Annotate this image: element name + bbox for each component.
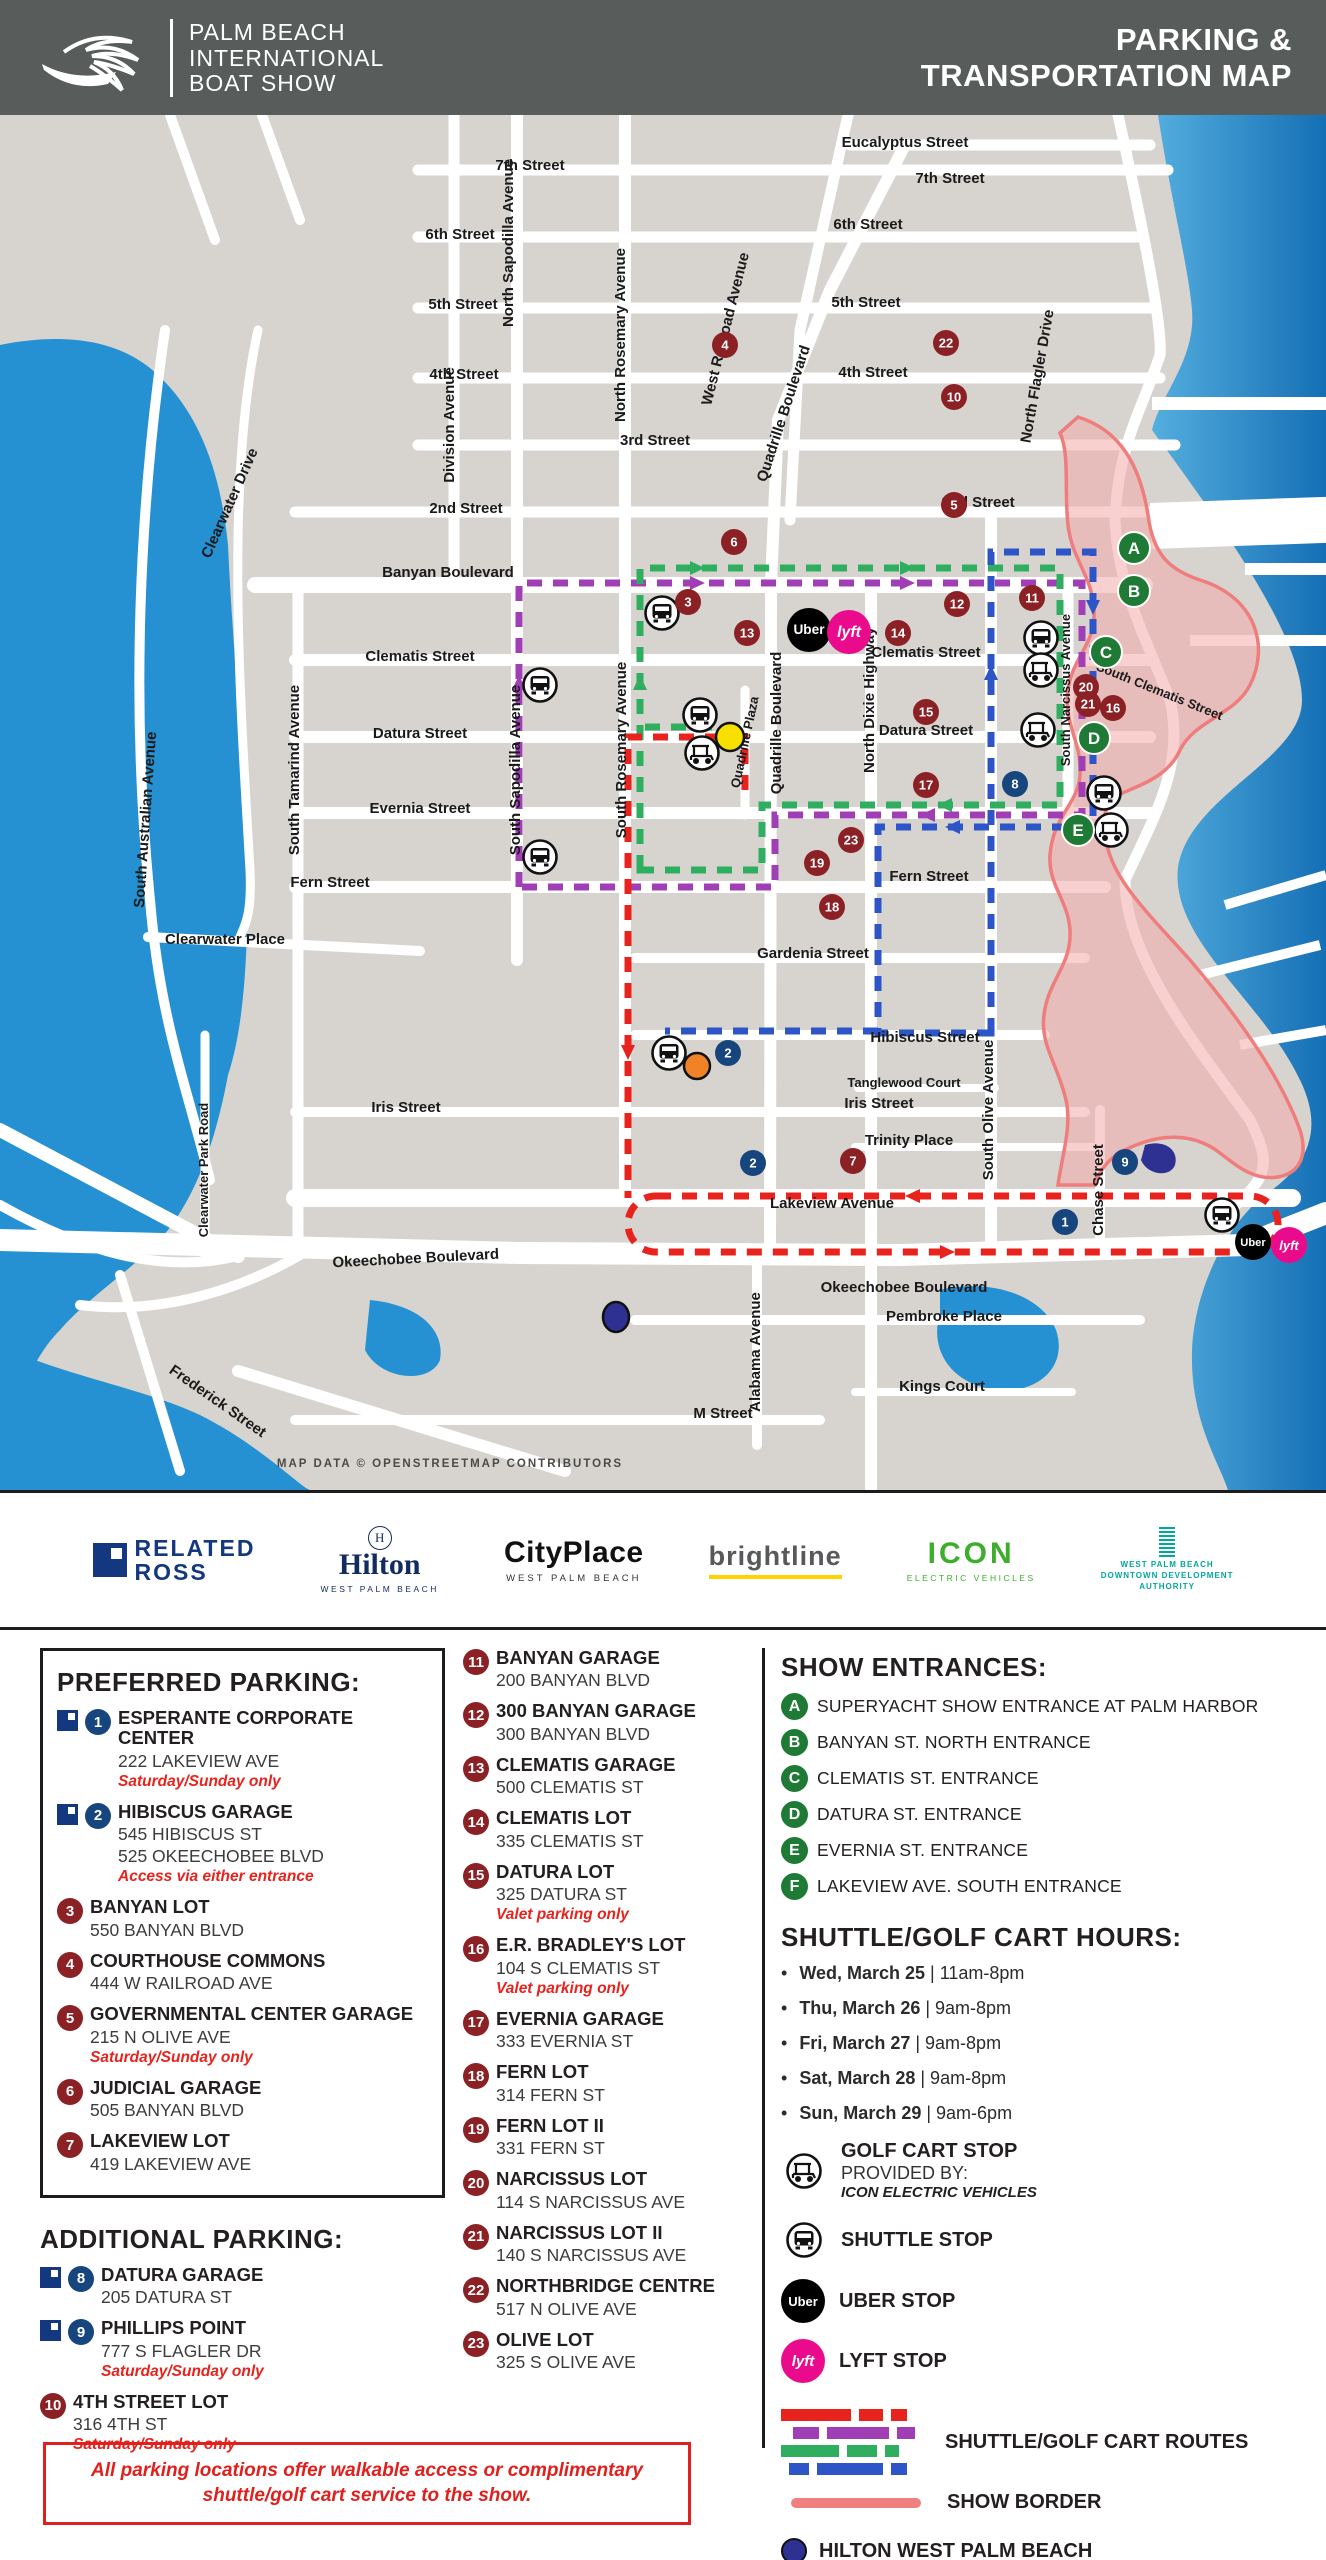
show-entrances-title: SHOW ENTRANCES:: [781, 1652, 1271, 1683]
parking-address: 104 S CLEMATIS ST: [496, 1958, 685, 1978]
street-label: South Narcissus Avenue: [1058, 614, 1073, 766]
map-marker-label-3: 3: [684, 595, 691, 610]
hilton-dot-icon: [781, 2538, 807, 2560]
hours-day: Thu, March 26: [799, 1998, 920, 2018]
parking-note: Saturday/Sunday only: [101, 2363, 264, 2381]
parking-item-text: FERN LOT314 FERN ST: [496, 2062, 605, 2104]
street-label: Clearwater Place: [165, 931, 285, 948]
hours-item-4: •Sun, March 29 | 9am-6pm: [781, 2103, 1271, 2124]
page: PALM BEACH INTERNATIONAL BOAT SHOW PARKI…: [0, 0, 1326, 2560]
street-label: Iris Street: [844, 1095, 913, 1112]
related-ross-flag-icon: [40, 2320, 61, 2341]
street-label: Division Avenue: [441, 367, 458, 483]
street-label: Iris Street: [371, 1099, 440, 1116]
related-ross-mark-icon: [93, 1543, 127, 1577]
related-ross-flag-icon: [57, 1804, 78, 1825]
lyft-stop-label: lyft: [837, 624, 861, 641]
shuttle-stop-legend: SHUTTLE STOP: [781, 2217, 1271, 2263]
hilton-logo: H Hilton WEST PALM BEACH: [321, 1526, 439, 1594]
parking-item-23: 23OLIVE LOT325 S OLIVE AVE: [463, 2330, 758, 2372]
uber-stop-label: Uber: [793, 622, 825, 637]
parking-item-12: 12300 BANYAN GARAGE300 BANYAN BLVD: [463, 1701, 758, 1743]
street-label: 4th Street: [838, 364, 907, 381]
street-label: South Olive Avenue: [980, 1040, 997, 1181]
golf-cart-stop-legend: GOLF CART STOP PROVIDED BY: ICON ELECTRI…: [781, 2140, 1271, 2201]
parking-badge-11: 11: [463, 1649, 489, 1675]
map-marker-label-19: 19: [810, 856, 824, 871]
brand: PALM BEACH INTERNATIONAL BOAT SHOW: [34, 12, 384, 104]
parking-item-text: EVERNIA GARAGE333 EVERNIA ST: [496, 2009, 664, 2051]
brand-divider: [170, 19, 173, 97]
street-label: Evernia Street: [370, 800, 471, 817]
parking-item-text: FERN LOT II331 FERN ST: [496, 2116, 605, 2158]
parking-address: 545 HIBISCUS ST: [118, 1824, 324, 1844]
parking-item-4: 4COURTHOUSE COMMONS444 W RAILROAD AVE: [57, 1951, 428, 1993]
cityplace-logo: CityPlace WEST PALM BEACH: [504, 1536, 644, 1584]
parking-address: 316 4TH ST: [73, 2414, 236, 2434]
shuttle-stop-icon: [781, 2217, 827, 2263]
entrance-badge-B: B: [781, 1729, 808, 1756]
parking-name: BANYAN LOT: [90, 1897, 244, 1917]
shuttle-stop-icon: [653, 1037, 686, 1070]
boat-show-logo-icon: [34, 12, 154, 104]
parking-address: 200 BANYAN BLVD: [496, 1670, 660, 1690]
parking-item-text: LAKEVIEW LOT419 LAKEVIEW AVE: [90, 2131, 251, 2173]
street-label: Chase Street: [1090, 1144, 1107, 1236]
parking-name: 4TH STREET LOT: [73, 2392, 236, 2412]
parking-note: Saturday/Sunday only: [118, 1773, 428, 1791]
parking-item-text: DATURA LOT325 DATURA STValet parking onl…: [496, 1862, 629, 1924]
parking-badge-17: 17: [463, 2010, 489, 2036]
parking-item-7: 7LAKEVIEW LOT419 LAKEVIEW AVE: [57, 2131, 428, 2173]
map-marker-label-15: 15: [919, 705, 933, 720]
related-ross-flag-icon: [57, 1710, 78, 1731]
parking-address: 215 N OLIVE AVE: [90, 2027, 413, 2047]
parking-name: GOVERNMENTAL CENTER GARAGE: [90, 2004, 413, 2024]
map-marker-label-1: 1: [1061, 1215, 1068, 1230]
shuttle-stop-icon: [524, 669, 557, 702]
legend: PREFERRED PARKING: 1ESPERANTE CORPORATE …: [0, 1630, 1326, 2560]
entrance-label: BANYAN ST. NORTH ENTRANCE: [817, 1732, 1091, 1753]
parking-badge-16: 16: [463, 1936, 489, 1962]
parking-address: 777 S FLAGLER DR: [101, 2341, 264, 2361]
map-marker-label-12: 12: [950, 597, 964, 612]
map-marker-label-5: 5: [950, 498, 957, 513]
entrance-item-E: EEVERNIA ST. ENTRANCE: [781, 1837, 1271, 1864]
hours-text: Sun, March 29 | 9am-6pm: [799, 2103, 1012, 2124]
entrance-item-A: ASUPERYACHT SHOW ENTRANCE AT PALM HARBOR: [781, 1693, 1271, 1720]
parking-item-3: 3BANYAN LOT550 BANYAN BLVD: [57, 1897, 428, 1939]
street-label: 2nd Street: [429, 500, 502, 517]
street-label: Pembroke Place: [886, 1308, 1002, 1325]
map-marker-label-11: 11: [1025, 591, 1039, 606]
parking-address: 325 DATURA ST: [496, 1884, 629, 1904]
parking-item-22: 22NORTHBRIDGE CENTRE517 N OLIVE AVE: [463, 2276, 758, 2318]
parking-name: BANYAN GARAGE: [496, 1648, 660, 1668]
street-label: South Tamarind Avenue: [286, 685, 303, 855]
shuttle-stop-icon: [1025, 622, 1058, 655]
parking-item-text: CLEMATIS LOT335 CLEMATIS ST: [496, 1808, 644, 1850]
dda-tower-icon: [1159, 1527, 1175, 1557]
street-label: North Sapodilla Avenue: [500, 159, 517, 327]
show-info-column: SHOW ENTRANCES: ASUPERYACHT SHOW ENTRANC…: [781, 1648, 1271, 2560]
parking-item-8: 8DATURA GARAGE205 DATURA ST: [40, 2265, 445, 2307]
map-marker-label-18: 18: [825, 900, 839, 915]
parking-address: 525 OKEECHOBEE BLVD: [118, 1846, 324, 1866]
parking-item-text: E.R. BRADLEY'S LOT104 S CLEMATIS STValet…: [496, 1935, 685, 1997]
parking-name: DATURA GARAGE: [101, 2265, 263, 2285]
map-marker-label-14: 14: [891, 626, 906, 641]
parking-address: 335 CLEMATIS ST: [496, 1831, 644, 1851]
map-entrance-label-D: D: [1088, 729, 1100, 748]
parking-address: 205 DATURA ST: [101, 2287, 263, 2307]
header: PALM BEACH INTERNATIONAL BOAT SHOW PARKI…: [0, 0, 1326, 115]
hours-text: Fri, March 27 | 9am-8pm: [799, 2033, 1001, 2054]
street-label: Gardenia Street: [757, 945, 869, 962]
show-border-legend: SHOW BORDER: [781, 2491, 1271, 2514]
parking-note: Access via either entrance: [118, 1868, 324, 1886]
street-label: 6th Street: [833, 216, 902, 233]
map-marker-label-9: 9: [1121, 1155, 1128, 1170]
hilton-dot: [603, 1302, 629, 1332]
parking-note: Saturday/Sunday only: [90, 2049, 413, 2067]
street-label: Okeechobee Boulevard: [821, 1279, 988, 1296]
routes-swatch-icon: [781, 2409, 931, 2475]
parking-address: 444 W RAILROAD AVE: [90, 1973, 325, 1993]
parking-name: E.R. BRADLEY'S LOT: [496, 1935, 685, 1955]
parking-address: 140 S NARCISSUS AVE: [496, 2245, 686, 2265]
hours-day: Fri, March 27: [799, 2033, 910, 2053]
parking-item-text: NARCISSUS LOT114 S NARCISSUS AVE: [496, 2169, 685, 2211]
parking-address: 222 LAKEVIEW AVE: [118, 1751, 428, 1771]
entrance-label: EVERNIA ST. ENTRANCE: [817, 1840, 1028, 1861]
parking-badge-5: 5: [57, 2005, 83, 2031]
parking-name: FERN LOT II: [496, 2116, 605, 2136]
brightline-dot: [716, 723, 744, 751]
street-label: Trinity Place: [865, 1132, 953, 1149]
parking-item-19: 19FERN LOT II331 FERN ST: [463, 2116, 758, 2158]
parking-name: LAKEVIEW LOT: [90, 2131, 251, 2151]
dda-logo: WEST PALM BEACH DOWNTOWN DEVELOPMENT AUT…: [1101, 1527, 1234, 1592]
street-label: Alabama Avenue: [747, 1292, 764, 1412]
parking-address: 419 LAKEVIEW AVE: [90, 2154, 251, 2174]
parking-item-15: 15DATURA LOT325 DATURA STValet parking o…: [463, 1862, 758, 1924]
hours-title: SHUTTLE/GOLF CART HOURS:: [781, 1922, 1271, 1953]
parking-item-18: 18FERN LOT314 FERN ST: [463, 2062, 758, 2104]
street-label: North Rosemary Avenue: [612, 248, 629, 422]
additional-parking-title: ADDITIONAL PARKING:: [40, 2224, 445, 2255]
hilton-mark-icon: H: [368, 1526, 392, 1550]
parking-badge-23: 23: [463, 2331, 489, 2357]
street-label: Fern Street: [290, 874, 369, 891]
parking-item-21: 21NARCISSUS LOT II140 S NARCISSUS AVE: [463, 2223, 758, 2265]
parking-name: OLIVE LOT: [496, 2330, 636, 2350]
sponsor-bar: RELATEDROSS H Hilton WEST PALM BEACH Cit…: [0, 1490, 1326, 1630]
preferred-parking-title: PREFERRED PARKING:: [57, 1667, 428, 1698]
entrance-label: CLEMATIS ST. ENTRANCE: [817, 1768, 1039, 1789]
parking-name: FERN LOT: [496, 2062, 605, 2082]
parking-item-text: DATURA GARAGE205 DATURA ST: [101, 2265, 263, 2307]
street-label: South Rosemary Avenue: [613, 662, 630, 838]
parking-name: NORTHBRIDGE CENTRE: [496, 2276, 715, 2296]
entrance-item-F: FLAKEVIEW AVE. SOUTH ENTRANCE: [781, 1873, 1271, 1900]
hours-item-2: •Fri, March 27 | 9am-8pm: [781, 2033, 1271, 2054]
parking-item-20: 20NARCISSUS LOT114 S NARCISSUS AVE: [463, 2169, 758, 2211]
hours-text: Thu, March 26 | 9am-8pm: [799, 1998, 1011, 2019]
golf-cart-stop-icon: [1022, 714, 1055, 747]
parking-name: EVERNIA GARAGE: [496, 2009, 664, 2029]
map-marker-label-10: 10: [947, 390, 961, 405]
parking-badge-4: 4: [57, 1952, 83, 1978]
map-entrance-label-B: B: [1128, 582, 1140, 601]
street-label: Quadrille Boulevard: [768, 652, 785, 795]
entrance-label: LAKEVIEW AVE. SOUTH ENTRANCE: [817, 1876, 1122, 1897]
uber-icon: Uber: [781, 2279, 825, 2323]
parking-item-text: BANYAN LOT550 BANYAN BLVD: [90, 1897, 244, 1939]
parking-badge-6: 6: [57, 2079, 83, 2105]
map-attribution: MAP DATA © OPENSTREETMAP CONTRIBUTORS: [277, 1458, 623, 1470]
parking-address: 333 EVERNIA ST: [496, 2031, 664, 2051]
map-entrance-label-A: A: [1128, 539, 1140, 558]
parking-name: NARCISSUS LOT II: [496, 2223, 686, 2243]
parking-badge-19: 19: [463, 2117, 489, 2143]
parking-item-text: ESPERANTE CORPORATE CENTER222 LAKEVIEW A…: [118, 1708, 428, 1791]
bullet-icon: •: [781, 2103, 787, 2124]
golf-cart-stop-icon: [781, 2148, 827, 2194]
lyft-stop-legend: lyft LYFT STOP: [781, 2339, 1271, 2383]
show-border-swatch-icon: [791, 2498, 921, 2508]
map-marker-label-4: 4: [721, 338, 729, 353]
preferred-parking-box: PREFERRED PARKING: 1ESPERANTE CORPORATE …: [40, 1648, 445, 2198]
map-canvas: Eucalyptus Street7th Street7th Street6th…: [0, 115, 1326, 1490]
street-label: 4th Street: [429, 366, 498, 383]
parking-name: PHILLIPS POINT: [101, 2318, 264, 2338]
parking-item-9: 9PHILLIPS POINT777 S FLAGLER DRSaturday/…: [40, 2318, 445, 2380]
parking-badge-10: 10: [40, 2393, 66, 2419]
parking-item-text: PHILLIPS POINT777 S FLAGLER DRSaturday/S…: [101, 2318, 264, 2380]
parking-item-text: COURTHOUSE COMMONS444 W RAILROAD AVE: [90, 1951, 325, 1993]
parking-item-text: OLIVE LOT325 S OLIVE AVE: [496, 2330, 636, 2372]
parking-item-14: 14CLEMATIS LOT335 CLEMATIS ST: [463, 1808, 758, 1850]
street-label: Hibiscus Street: [870, 1029, 979, 1046]
parking-name: COURTHOUSE COMMONS: [90, 1951, 325, 1971]
parking-address: 517 N OLIVE AVE: [496, 2299, 715, 2319]
legend-divider: [762, 1648, 765, 2448]
parking-item-text: HIBISCUS GARAGE545 HIBISCUS ST525 OKEECH…: [118, 1802, 324, 1887]
parking-item-11: 11BANYAN GARAGE200 BANYAN BLVD: [463, 1648, 758, 1690]
parking-address: 550 BANYAN BLVD: [90, 1920, 244, 1940]
cityplace-dot: [684, 1053, 710, 1079]
hours-text: Sat, March 28 | 9am-8pm: [799, 2068, 1006, 2089]
street-label: Banyan Boulevard: [382, 564, 514, 581]
hours-day: Wed, March 25: [799, 1963, 925, 1983]
parking-name: CLEMATIS LOT: [496, 1808, 644, 1828]
map-marker-label-8: 8: [1011, 777, 1018, 792]
map-entrance-label-E: E: [1072, 821, 1083, 840]
street-label: Clematis Street: [871, 644, 980, 661]
icon-ev-logo: ICON ELECTRIC VEHICLES: [907, 1537, 1036, 1583]
street-label: 5th Street: [428, 296, 497, 313]
map-marker-label-13: 13: [740, 626, 754, 641]
parking-address: 314 FERN ST: [496, 2085, 605, 2105]
entrance-item-B: BBANYAN ST. NORTH ENTRANCE: [781, 1729, 1271, 1756]
uber-stop-legend: Uber UBER STOP: [781, 2279, 1271, 2323]
entrance-item-C: CCLEMATIS ST. ENTRANCE: [781, 1765, 1271, 1792]
hours-item-3: •Sat, March 28 | 9am-8pm: [781, 2068, 1271, 2089]
street-label: Kings Court: [899, 1378, 985, 1395]
hours-day: Sun, March 29: [799, 2103, 921, 2123]
parking-badge-1: 1: [85, 1709, 111, 1735]
street-label: Fern Street: [889, 868, 968, 885]
bullet-icon: •: [781, 1998, 787, 2019]
parking-address: 300 BANYAN BLVD: [496, 1724, 696, 1744]
bullet-icon: •: [781, 2068, 787, 2089]
parking-badge-13: 13: [463, 1756, 489, 1782]
street-label: Lakeview Avenue: [770, 1195, 894, 1212]
parking-name: JUDICIAL GARAGE: [90, 2078, 261, 2098]
page-title: PARKING & TRANSPORTATION MAP: [921, 22, 1292, 93]
related-ross-flag-icon: [40, 2267, 61, 2288]
street-label: Clematis Street: [365, 648, 474, 665]
street-label: 6th Street: [425, 226, 494, 243]
street-label: 3rd Street: [620, 432, 690, 449]
parking-item-text: BANYAN GARAGE200 BANYAN BLVD: [496, 1648, 660, 1690]
parking-item-5: 5GOVERNMENTAL CENTER GARAGE215 N OLIVE A…: [57, 2004, 428, 2066]
parking-item-17: 17EVERNIA GARAGE333 EVERNIA ST: [463, 2009, 758, 2051]
golf-cart-stop-icon: [1095, 814, 1128, 847]
bullet-icon: •: [781, 2033, 787, 2054]
lyft-icon: lyft: [781, 2339, 825, 2383]
parking-item-text: 300 BANYAN GARAGE300 BANYAN BLVD: [496, 1701, 696, 1743]
shuttle-stop-icon: [646, 597, 679, 630]
street-label: 5th Street: [831, 294, 900, 311]
map-marker-label-2: 2: [724, 1046, 731, 1061]
parking-badge-22: 22: [463, 2277, 489, 2303]
street-label: South Sapodilla Avenue: [507, 685, 524, 856]
parking-name: CLEMATIS GARAGE: [496, 1755, 676, 1775]
entrance-badge-A: A: [781, 1693, 808, 1720]
hours-day: Sat, March 28: [799, 2068, 915, 2088]
golf-cart-stop-icon: [1025, 654, 1058, 687]
shuttle-stop-icon: [1088, 777, 1121, 810]
parking-badge-12: 12: [463, 1702, 489, 1728]
map-marker-label-6: 6: [730, 535, 737, 550]
brightline-logo: brightline: [709, 1541, 842, 1579]
street-label: M Street: [693, 1405, 752, 1422]
street-label: 7th Street: [915, 170, 984, 187]
parking-item-text: NARCISSUS LOT II140 S NARCISSUS AVE: [496, 2223, 686, 2265]
bullet-icon: •: [781, 1963, 787, 1984]
map: Eucalyptus Street7th Street7th Street6th…: [0, 115, 1326, 1490]
parking-address: 500 CLEMATIS ST: [496, 1777, 676, 1797]
parking-address: 331 FERN ST: [496, 2138, 605, 2158]
entrance-item-D: DDATURA ST. ENTRANCE: [781, 1801, 1271, 1828]
parking-badge-7: 7: [57, 2132, 83, 2158]
entrance-label: DATURA ST. ENTRANCE: [817, 1804, 1022, 1825]
hours-item-1: •Thu, March 26 | 9am-8pm: [781, 1998, 1271, 2019]
parking-item-text: GOVERNMENTAL CENTER GARAGE215 N OLIVE AV…: [90, 2004, 413, 2066]
parking-address: 325 S OLIVE AVE: [496, 2352, 636, 2372]
parking-address: 505 BANYAN BLVD: [90, 2100, 261, 2120]
parking-address: 114 S NARCISSUS AVE: [496, 2192, 685, 2212]
map-marker-label-21: 21: [1081, 697, 1095, 712]
footer-note: All parking locations offer walkable acc…: [43, 2442, 691, 2525]
map-marker-label-17: 17: [919, 778, 933, 793]
shuttle-stop-icon: [524, 841, 557, 874]
parking-item-13: 13CLEMATIS GARAGE500 CLEMATIS ST: [463, 1755, 758, 1797]
parking-badge-21: 21: [463, 2224, 489, 2250]
parking-note: Valet parking only: [496, 1980, 685, 1998]
parking-badge-14: 14: [463, 1809, 489, 1835]
brand-name: PALM BEACH INTERNATIONAL BOAT SHOW: [189, 19, 384, 97]
parking-badge-9: 9: [68, 2319, 94, 2345]
entrance-label: SUPERYACHT SHOW ENTRANCE AT PALM HARBOR: [817, 1696, 1259, 1717]
map-entrance-label-C: C: [1100, 643, 1112, 662]
parking-item-text: JUDICIAL GARAGE505 BANYAN BLVD: [90, 2078, 261, 2120]
parking-column-2: 11BANYAN GARAGE200 BANYAN BLVD12300 BANY…: [463, 1648, 758, 2383]
parking-badge-8: 8: [68, 2266, 94, 2292]
entrance-badge-E: E: [781, 1837, 808, 1864]
street-label: Tanglewood Court: [847, 1075, 961, 1090]
lyft-stop-label: lyft: [1279, 1238, 1299, 1253]
shuttle-stop-icon: [1206, 1199, 1239, 1232]
parking-item-text: CLEMATIS GARAGE500 CLEMATIS ST: [496, 1755, 676, 1797]
map-marker-label-7: 7: [849, 1154, 856, 1169]
entrance-badge-C: C: [781, 1765, 808, 1792]
parking-item-2: 2HIBISCUS GARAGE545 HIBISCUS ST525 OKEEC…: [57, 1802, 428, 1887]
map-marker-label-2: 2: [749, 1156, 756, 1171]
map-marker-label-23: 23: [844, 833, 858, 848]
parking-name: HIBISCUS GARAGE: [118, 1802, 324, 1822]
entrance-badge-D: D: [781, 1801, 808, 1828]
parking-item-1: 1ESPERANTE CORPORATE CENTER222 LAKEVIEW …: [57, 1708, 428, 1791]
routes-legend: SHUTTLE/GOLF CART ROUTES: [781, 2409, 1271, 2475]
hilton-poi-legend: HILTON WEST PALM BEACH: [781, 2538, 1271, 2560]
map-marker-label-22: 22: [939, 336, 953, 351]
uber-stop-label: Uber: [1240, 1237, 1266, 1249]
parking-item-16: 16E.R. BRADLEY'S LOT104 S CLEMATIS STVal…: [463, 1935, 758, 1997]
street-label: Clearwater Park Road: [196, 1103, 211, 1237]
parking-name: 300 BANYAN GARAGE: [496, 1701, 696, 1721]
street-label: Datura Street: [373, 725, 467, 742]
preferred-parking-column: PREFERRED PARKING: 1ESPERANTE CORPORATE …: [40, 1648, 445, 2465]
parking-name: ESPERANTE CORPORATE CENTER: [118, 1708, 428, 1749]
golf-cart-stop-icon: [686, 737, 719, 770]
parking-badge-2: 2: [85, 1803, 111, 1829]
parking-name: DATURA LOT: [496, 1862, 629, 1882]
parking-badge-15: 15: [463, 1863, 489, 1889]
parking-name: NARCISSUS LOT: [496, 2169, 685, 2189]
parking-badge-20: 20: [463, 2170, 489, 2196]
map-marker-label-16: 16: [1106, 701, 1120, 716]
entrance-badge-F: F: [781, 1873, 808, 1900]
parking-badge-18: 18: [463, 2063, 489, 2089]
parking-badge-3: 3: [57, 1898, 83, 1924]
shuttle-stop-icon: [684, 699, 717, 732]
street-label: Eucalyptus Street: [842, 134, 969, 151]
parking-note: Valet parking only: [496, 1906, 629, 1924]
hours-item-0: •Wed, March 25 | 11am-8pm: [781, 1963, 1271, 1984]
parking-item-text: NORTHBRIDGE CENTRE517 N OLIVE AVE: [496, 2276, 715, 2318]
parking-item-6: 6JUDICIAL GARAGE505 BANYAN BLVD: [57, 2078, 428, 2120]
hours-text: Wed, March 25 | 11am-8pm: [799, 1963, 1024, 1984]
related-ross-logo: RELATEDROSS: [93, 1536, 256, 1584]
